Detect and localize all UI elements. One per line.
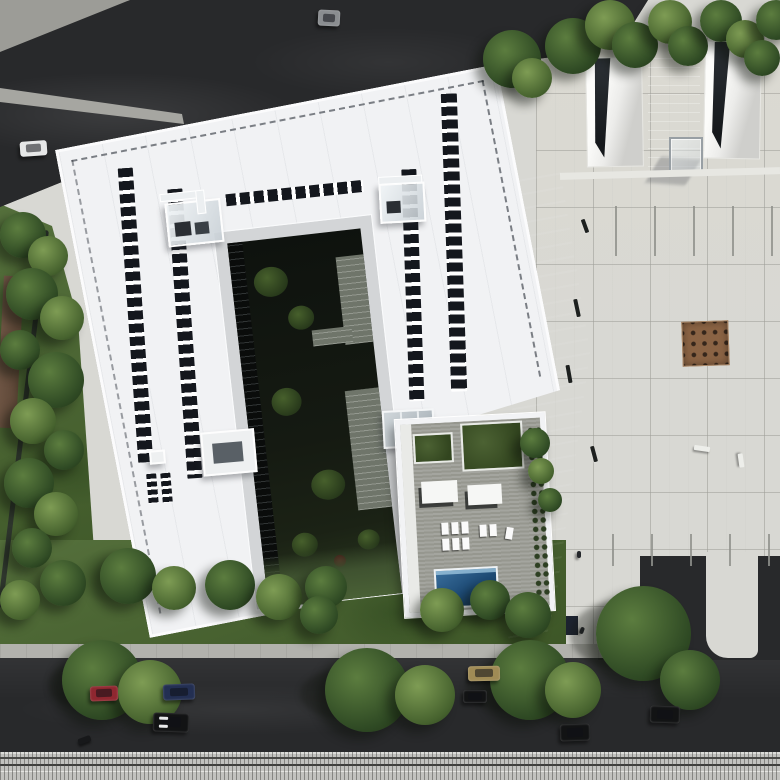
sun-lounger [442, 538, 450, 550]
sun-lounger [461, 521, 469, 533]
sun-lounger [505, 527, 514, 540]
car-white-top [20, 140, 48, 157]
glass-pane [174, 221, 191, 237]
tree [744, 40, 780, 76]
street-tree [545, 662, 601, 718]
tree [12, 528, 52, 568]
aerial-site-render [0, 0, 780, 780]
terrace-cabana [467, 484, 502, 506]
terrace-cabana [421, 480, 458, 504]
tree [100, 548, 156, 604]
sun-lounger [452, 538, 460, 550]
street-tree [660, 650, 720, 710]
terrace-planter [460, 420, 524, 471]
light-well-left [585, 57, 644, 168]
tree [300, 596, 338, 634]
car-black-right [650, 705, 681, 723]
sun-lounger [441, 522, 449, 534]
roof-glass-enclosure-left [164, 198, 224, 248]
sun-lounger [489, 524, 497, 536]
car-tan [468, 666, 500, 682]
terrace-planter [413, 432, 455, 464]
tree [420, 588, 464, 632]
sun-lounger [451, 522, 459, 534]
tree [512, 58, 552, 98]
car-red [90, 686, 119, 702]
pool-edge-highlight [436, 568, 496, 575]
stall-markings-upper [615, 206, 780, 256]
tree [0, 580, 40, 620]
roof-beam [378, 175, 422, 185]
stall-markings-lower [612, 534, 780, 566]
tree [40, 560, 86, 606]
driveway-island [706, 552, 758, 658]
glass-pane [194, 221, 209, 234]
car-black-far [560, 723, 591, 741]
truck-gray [318, 9, 341, 26]
car-black-suv [153, 712, 190, 732]
car-blue [163, 683, 196, 700]
roof-rail [159, 717, 168, 720]
roof-glass-enclosure-right [378, 181, 426, 223]
plant-room-opening [212, 441, 244, 464]
glass-pane [386, 201, 401, 214]
tree [538, 488, 562, 512]
tree [44, 430, 84, 470]
sun-lounger [462, 537, 470, 549]
street-tree [395, 665, 455, 725]
tree [668, 26, 708, 66]
tree [470, 580, 510, 620]
tree [205, 560, 255, 610]
tree [40, 296, 84, 340]
roof-plant-room [200, 428, 258, 477]
tree [256, 574, 302, 620]
tree [520, 428, 550, 458]
tree [505, 592, 551, 638]
roof-vent [149, 449, 166, 464]
car-black-hatch [463, 690, 487, 703]
tree [152, 566, 196, 610]
tree [528, 458, 554, 484]
glass-cube-pavilion [669, 137, 703, 173]
tree-grove-planter [681, 320, 730, 367]
roof-rail [159, 725, 168, 728]
tram-tracks [0, 752, 780, 780]
sun-lounger [479, 524, 487, 536]
